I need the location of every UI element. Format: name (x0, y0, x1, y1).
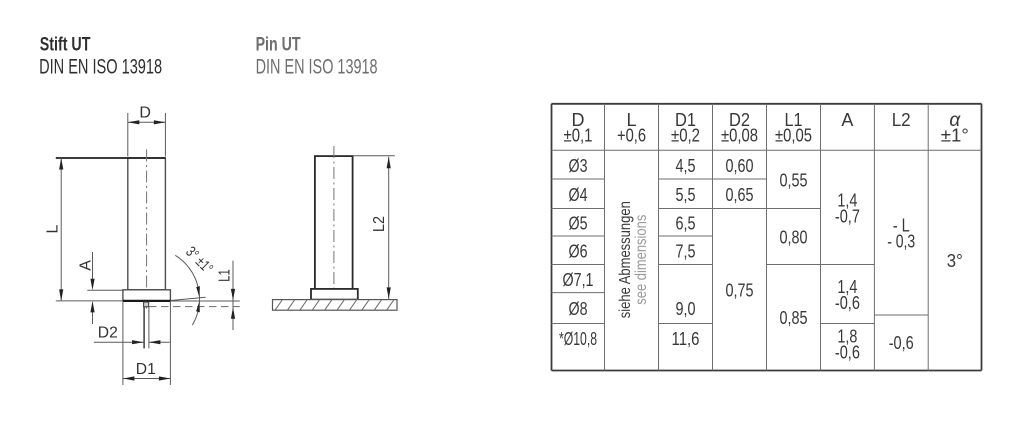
svg-text:L2: L2 (371, 216, 388, 232)
svg-text:Ø3: Ø3 (569, 156, 588, 176)
svg-text:±0,2: ±0,2 (671, 126, 700, 146)
svg-text:Pin UT: Pin UT (256, 35, 301, 56)
svg-text:0,60: 0,60 (726, 156, 754, 176)
svg-text:Ø7,1: Ø7,1 (563, 270, 594, 290)
svg-text:Ø4: Ø4 (569, 185, 588, 205)
svg-text:L2: L2 (892, 110, 911, 130)
svg-text:-0,6: -0,6 (835, 293, 860, 313)
svg-text:L1: L1 (217, 269, 234, 282)
svg-text:6,5: 6,5 (676, 214, 696, 234)
svg-text:+0,6: +0,6 (617, 126, 646, 146)
svg-text:- 0,3: - 0,3 (887, 232, 915, 252)
svg-text:±0,05: ±0,05 (775, 126, 812, 146)
svg-text:D2: D2 (98, 325, 118, 342)
svg-text:L: L (45, 224, 62, 233)
svg-text:3° ±1°: 3° ±1° (182, 243, 216, 277)
svg-text:Ø8: Ø8 (569, 299, 588, 319)
svg-text:Stift UT: Stift UT (40, 35, 91, 56)
svg-text:*Ø10,8: *Ø10,8 (559, 329, 597, 349)
svg-text:±0,08: ±0,08 (721, 126, 758, 146)
svg-text:±0,1: ±0,1 (564, 126, 593, 146)
svg-text:DIN EN ISO 13918: DIN EN ISO 13918 (39, 55, 162, 78)
svg-text:-0,7: -0,7 (835, 207, 860, 227)
svg-text:9,0: 9,0 (676, 299, 696, 319)
svg-text:A: A (77, 260, 94, 271)
svg-text:5,5: 5,5 (676, 185, 696, 205)
svg-text:4,5: 4,5 (676, 156, 696, 176)
svg-text:-0,6: -0,6 (835, 343, 860, 363)
svg-text:A: A (841, 110, 853, 130)
svg-text:Ø5: Ø5 (569, 214, 588, 234)
svg-text:-0,6: -0,6 (889, 333, 914, 353)
svg-text:7,5: 7,5 (676, 242, 696, 262)
svg-text:0,85: 0,85 (780, 308, 808, 328)
svg-text:±1°: ±1° (941, 126, 969, 146)
svg-text:Ø6: Ø6 (569, 242, 588, 262)
svg-text:3°: 3° (947, 251, 963, 271)
svg-text:see dimensions: see dimensions (633, 215, 650, 305)
svg-text:DIN EN ISO 13918: DIN EN ISO 13918 (256, 55, 378, 78)
svg-text:0,75: 0,75 (726, 281, 754, 301)
svg-text:11,6: 11,6 (672, 329, 700, 349)
svg-text:0,80: 0,80 (780, 228, 808, 248)
svg-text:siehe Abmessungen: siehe Abmessungen (617, 201, 634, 318)
svg-text:0,65: 0,65 (726, 185, 754, 205)
svg-text:0,55: 0,55 (780, 171, 808, 191)
svg-text:D: D (139, 104, 151, 121)
svg-text:D1: D1 (136, 361, 156, 378)
